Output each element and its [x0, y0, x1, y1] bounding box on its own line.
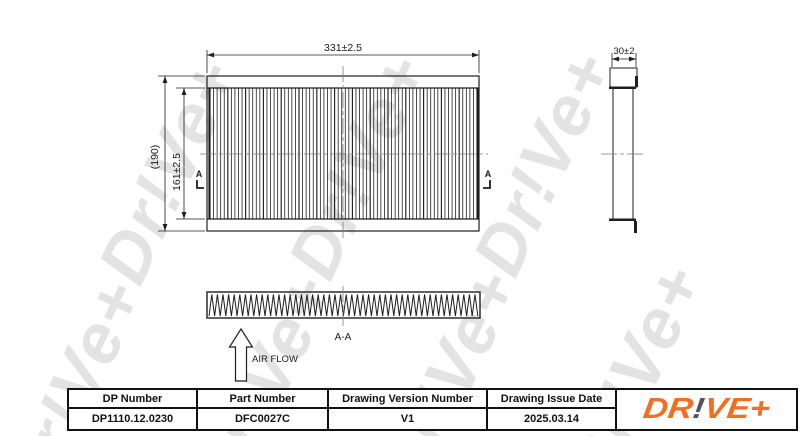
side-width-dim-label: 30±2	[613, 46, 634, 57]
side-top-cap	[610, 68, 637, 87]
drive-logo: DR!VE+	[641, 393, 772, 426]
pleat-lines	[210, 89, 477, 219]
side-top-lip	[635, 76, 638, 87]
table-header: Part Number	[198, 390, 327, 409]
table-col-part-number: Part Number DFC0027C	[198, 390, 329, 429]
table-header: DP Number	[69, 390, 196, 409]
side-top-flange	[609, 87, 636, 90]
air-flow-arrow-icon	[230, 329, 253, 381]
table-header: Drawing Version Number	[329, 390, 486, 409]
logo-part-dr: DR	[641, 393, 695, 425]
section-cut-marker-right	[483, 180, 490, 188]
air-flow-label: AIR FLOW	[252, 354, 298, 365]
technical-drawing-page: Dr!Ve+Dr!Ve+Dr!Ve+Dr!Ve+Dr!Ve+Dr!Ve+Dr!V…	[0, 0, 800, 436]
section-label: A-A	[335, 332, 352, 343]
side-view: 30±2	[601, 46, 645, 233]
table-value: DFC0027C	[198, 409, 327, 429]
width-dim-label: 331±2.5	[324, 42, 362, 54]
table-col-dp-number: DP Number DP1110.12.0230	[69, 390, 198, 429]
title-block-table: DP Number DP1110.12.0230 Part Number DFC…	[67, 388, 798, 431]
section-letter-right: A	[485, 169, 492, 179]
inner-height-dim-label: 161±2.5	[171, 153, 183, 191]
table-value: DP1110.12.0230	[69, 409, 196, 429]
side-bottom-tab	[634, 221, 637, 233]
table-header: Drawing Issue Date	[488, 390, 615, 409]
side-bottom-flange	[609, 219, 636, 222]
air-flow: AIR FLOW	[230, 329, 298, 381]
section-letter-left: A	[196, 169, 203, 179]
table-col-issue-date: Drawing Issue Date 2025.03.14	[488, 390, 617, 429]
section-cut-marker-left	[197, 180, 204, 188]
table-col-drawing-version: Drawing Version Number V1	[329, 390, 488, 429]
logo-cell: DR!VE+	[617, 390, 796, 429]
dimension-arrowheads	[163, 53, 636, 231]
logo-part-ve-plus: VE+	[702, 393, 772, 425]
filter-drawing: 331±2.5 (190) 161±2.5 A A 30±2	[0, 0, 800, 436]
section-view: A-A	[207, 286, 480, 343]
outer-height-dim-label: (190)	[149, 145, 161, 170]
front-view	[200, 66, 488, 239]
table-value: 2025.03.14	[488, 409, 615, 429]
table-value: V1	[329, 409, 486, 429]
